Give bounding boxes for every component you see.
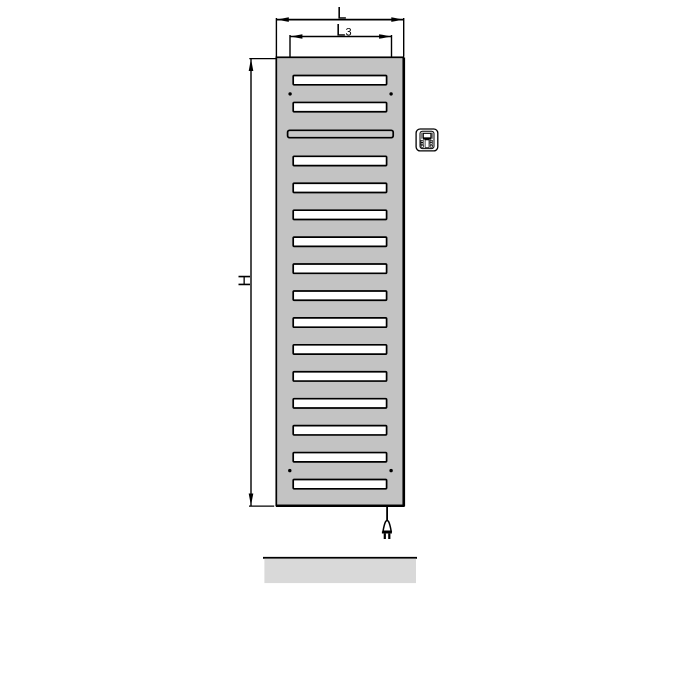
svg-text:L3: L3 xyxy=(336,21,352,40)
svg-text:H: H xyxy=(235,274,254,286)
